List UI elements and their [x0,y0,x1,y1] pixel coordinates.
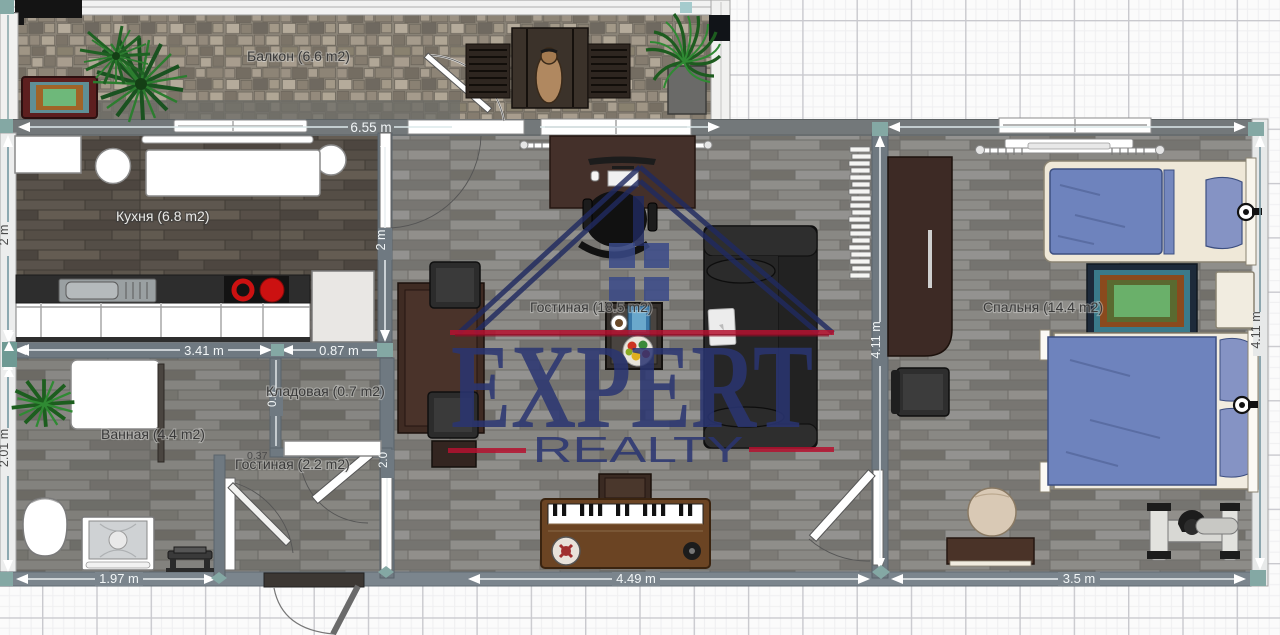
svg-text:Кухня (6.8 m2): Кухня (6.8 m2) [116,208,209,224]
svg-text:3.5 m: 3.5 m [1063,571,1096,586]
svg-text:0.87 m: 0.87 m [319,343,359,358]
svg-text:2 m: 2 m [0,225,11,246]
svg-text:Гостиная (18.5 m2): Гостиная (18.5 m2) [530,299,653,315]
svg-text:2 m: 2 m [374,230,388,251]
svg-text:Спальня (14.4 m2): Спальня (14.4 m2) [983,299,1103,315]
svg-text:Гостиная (2.2 m2): Гостиная (2.2 m2) [235,456,350,472]
svg-text:REALTY: REALTY [533,429,744,470]
svg-text:4.11 m: 4.11 m [1249,311,1263,348]
svg-text:6.55 m: 6.55 m [350,120,391,135]
svg-text:Ванная (4.4 m2): Ванная (4.4 m2) [101,426,205,442]
svg-text:Кладовая (0.7 m2): Кладовая (0.7 m2) [266,383,385,399]
svg-text:2.01 m: 2.01 m [0,429,11,467]
svg-text:Балкон (6.6 m2): Балкон (6.6 m2) [247,48,350,64]
svg-text:3.41 m: 3.41 m [184,343,224,358]
svg-text:1.97 m: 1.97 m [99,571,139,586]
svg-text:4.11 m: 4.11 m [869,321,883,358]
svg-text:4.49 m: 4.49 m [616,571,656,586]
svg-text:2.0: 2.0 [378,452,390,468]
